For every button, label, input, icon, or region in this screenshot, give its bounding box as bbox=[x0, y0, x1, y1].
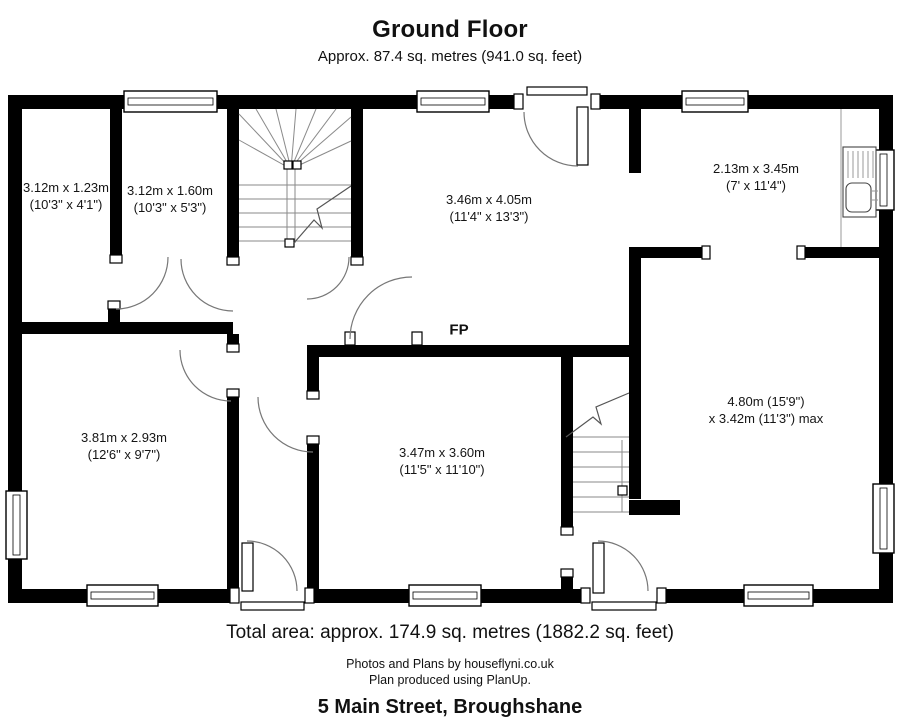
stair2-break-line bbox=[566, 393, 629, 437]
wall-corridor-left-a bbox=[227, 334, 239, 344]
room-label-top-left: 3.12m x 1.23m(10'3" x 4'1") bbox=[23, 180, 109, 214]
wall-kitchen-south-a bbox=[629, 247, 710, 258]
room-label-bottom-mid: 3.47m x 3.60m(11'5" x 11'10") bbox=[399, 445, 485, 479]
wall-kitchen-left-stub bbox=[629, 109, 641, 173]
door-arc-understairs bbox=[307, 257, 349, 299]
front-door-arc bbox=[247, 541, 297, 591]
wall-room-mid-right-stub bbox=[561, 577, 573, 589]
wall-corridor-right-b bbox=[307, 443, 319, 589]
top-door-leaf bbox=[577, 107, 588, 165]
window-top-1 bbox=[124, 91, 217, 112]
stair-newel-top-2 bbox=[293, 161, 301, 169]
wall-hall-stub bbox=[108, 308, 120, 322]
front-door-leaf bbox=[242, 543, 253, 591]
staircase-main bbox=[239, 109, 351, 247]
door-arc-room2 bbox=[181, 259, 233, 311]
room-label-top-left-2: 3.12m x 1.60m(10'3" x 5'3") bbox=[127, 183, 213, 217]
top-door-threshold bbox=[527, 87, 587, 95]
room-label-lounge: 3.46m x 4.05m(11'4" x 13'3") bbox=[446, 192, 532, 226]
kitchen-fixtures bbox=[841, 109, 878, 247]
room-label-bottom-left: 3.81m x 2.93m(12'6" x 9'7") bbox=[81, 430, 167, 464]
window-left-1 bbox=[6, 491, 27, 559]
window-top-3 bbox=[682, 91, 748, 112]
front-door-threshold bbox=[241, 602, 304, 610]
door-arc-room1 bbox=[116, 257, 168, 309]
back-door-leaf bbox=[593, 543, 604, 593]
wall-corridor-left-b bbox=[227, 396, 239, 589]
wall-kitchen-south-b bbox=[797, 247, 879, 258]
stair-newel-top bbox=[284, 161, 292, 169]
fireplace-label: FP bbox=[449, 322, 468, 339]
room-label-living: 4.80m (15'9")x 3.42m (11'3") max bbox=[709, 394, 824, 428]
top-door-arc bbox=[524, 112, 578, 166]
window-bottom-1 bbox=[87, 585, 158, 606]
window-top-2 bbox=[417, 91, 489, 112]
window-bottom-3 bbox=[744, 585, 813, 606]
total-area-text: Total area: approx. 174.9 sq. metres (18… bbox=[0, 622, 900, 644]
credit-line-1: Photos and Plans by houseflyni.co.uk bbox=[0, 657, 900, 671]
credit-line-2: Plan produced using PlanUp. bbox=[0, 673, 900, 687]
floor-plan-canvas bbox=[0, 0, 900, 723]
stair-break-line bbox=[294, 186, 351, 243]
kitchen-sink-icon bbox=[846, 183, 871, 212]
staircase-secondary bbox=[566, 393, 629, 512]
wall-hall-south bbox=[22, 322, 233, 334]
floorplan-page: Ground Floor Approx. 87.4 sq. metres (94… bbox=[0, 0, 900, 723]
back-door-arc bbox=[598, 541, 648, 591]
stair2-newel bbox=[618, 486, 627, 495]
back-door-threshold bbox=[592, 602, 656, 610]
door-arc-lounge bbox=[350, 277, 412, 339]
wall-living-left bbox=[629, 247, 641, 499]
wall-divider-room2 bbox=[227, 109, 239, 257]
window-bottom-2 bbox=[409, 585, 481, 606]
stair-newel-bottom bbox=[285, 239, 294, 247]
door-arc-bottom-left-room bbox=[180, 350, 231, 401]
wall-divider-room1 bbox=[110, 109, 122, 255]
address-title: 5 Main Street, Broughshane bbox=[0, 696, 900, 719]
wall-understairs-nook bbox=[629, 500, 680, 515]
wall-fireplace bbox=[307, 345, 640, 357]
door-arc-corridor bbox=[258, 397, 313, 452]
wall-stairs-right bbox=[351, 109, 363, 257]
window-right-2 bbox=[873, 484, 894, 553]
room-label-kitchen: 2.13m x 3.45m(7' x 11'4") bbox=[713, 161, 799, 195]
